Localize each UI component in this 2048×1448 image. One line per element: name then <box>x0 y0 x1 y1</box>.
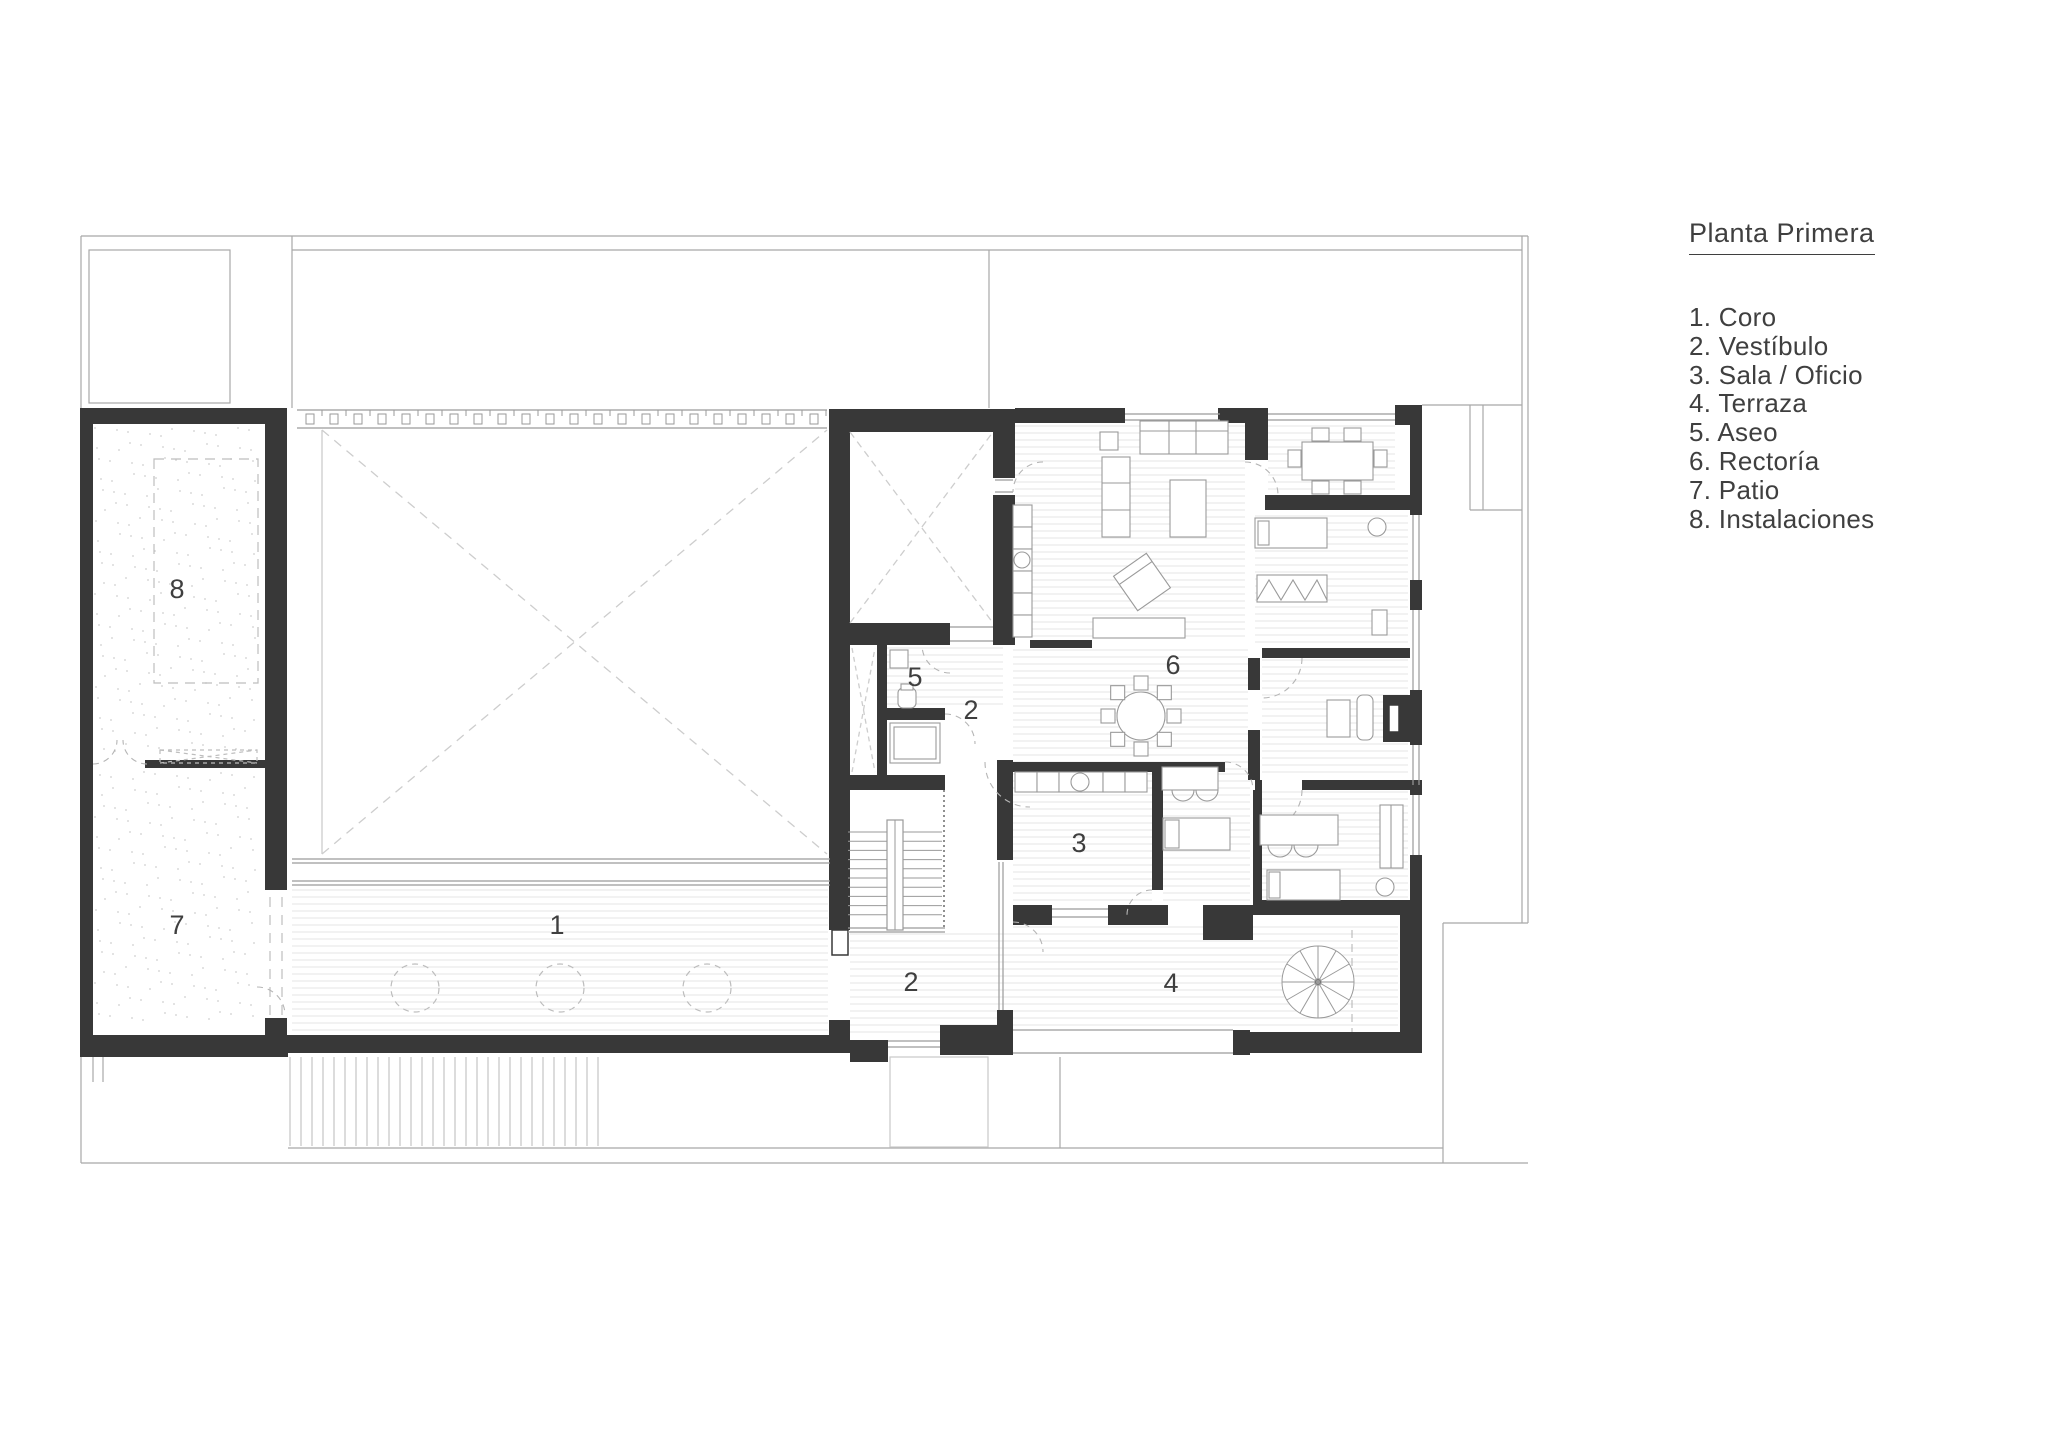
bedroom-c-furniture <box>1260 805 1403 900</box>
room-label-patio: 7 <box>169 910 184 940</box>
legend-item: 6. Rectoría <box>1689 447 2019 476</box>
drawing-title: Planta Primera <box>1689 218 1875 255</box>
room-label-rectoria: 6 <box>1165 650 1180 680</box>
legend-item: 5. Aseo <box>1689 418 2019 447</box>
legend: Planta Primera 1. Coro2. Vestíbulo3. Sal… <box>1689 218 2019 533</box>
bedroom-a-furniture <box>1255 518 1387 635</box>
kitchen-counter <box>1013 505 1032 637</box>
spiral-staircase <box>1282 946 1354 1018</box>
dining-table-group <box>1288 428 1387 494</box>
bedroom-b-furniture <box>1327 695 1373 740</box>
round-table-group <box>1101 676 1181 756</box>
legend-item: 7. Patio <box>1689 476 2019 505</box>
sofa <box>1140 421 1228 454</box>
coffee-table <box>1170 480 1206 537</box>
legend-item: 3. Sala / Oficio <box>1689 361 2019 390</box>
shelf-unit <box>1102 457 1130 537</box>
legend-item: 2. Vestíbulo <box>1689 332 2019 361</box>
room-label-instalaciones: 8 <box>169 574 184 604</box>
room-label-coro: 1 <box>549 910 564 940</box>
legend-item: 4. Terraza <box>1689 389 2019 418</box>
room-label-vestibulo-lower: 2 <box>903 967 918 997</box>
room-label-sala-oficio: 3 <box>1071 828 1086 858</box>
legend-item: 1. Coro <box>1689 303 2019 332</box>
armchair <box>1114 553 1171 610</box>
kitchen-sink <box>1014 552 1030 568</box>
shower-tray <box>890 723 940 763</box>
legend-item: 8. Instalaciones <box>1689 505 2019 534</box>
legend-list: 1. Coro2. Vestíbulo3. Sala / Oficio4. Te… <box>1689 303 2019 533</box>
exterior-steps <box>290 1057 598 1146</box>
sideboard <box>1093 618 1185 638</box>
room-label-terraza: 4 <box>1163 968 1178 998</box>
sala-sink <box>1071 773 1089 791</box>
site-boundary <box>81 236 1528 1163</box>
pew-strip <box>306 410 826 424</box>
room-label-aseo: 5 <box>907 662 922 692</box>
room-label-vestibulo-upper: 2 <box>963 695 978 725</box>
side-table <box>1100 432 1118 450</box>
